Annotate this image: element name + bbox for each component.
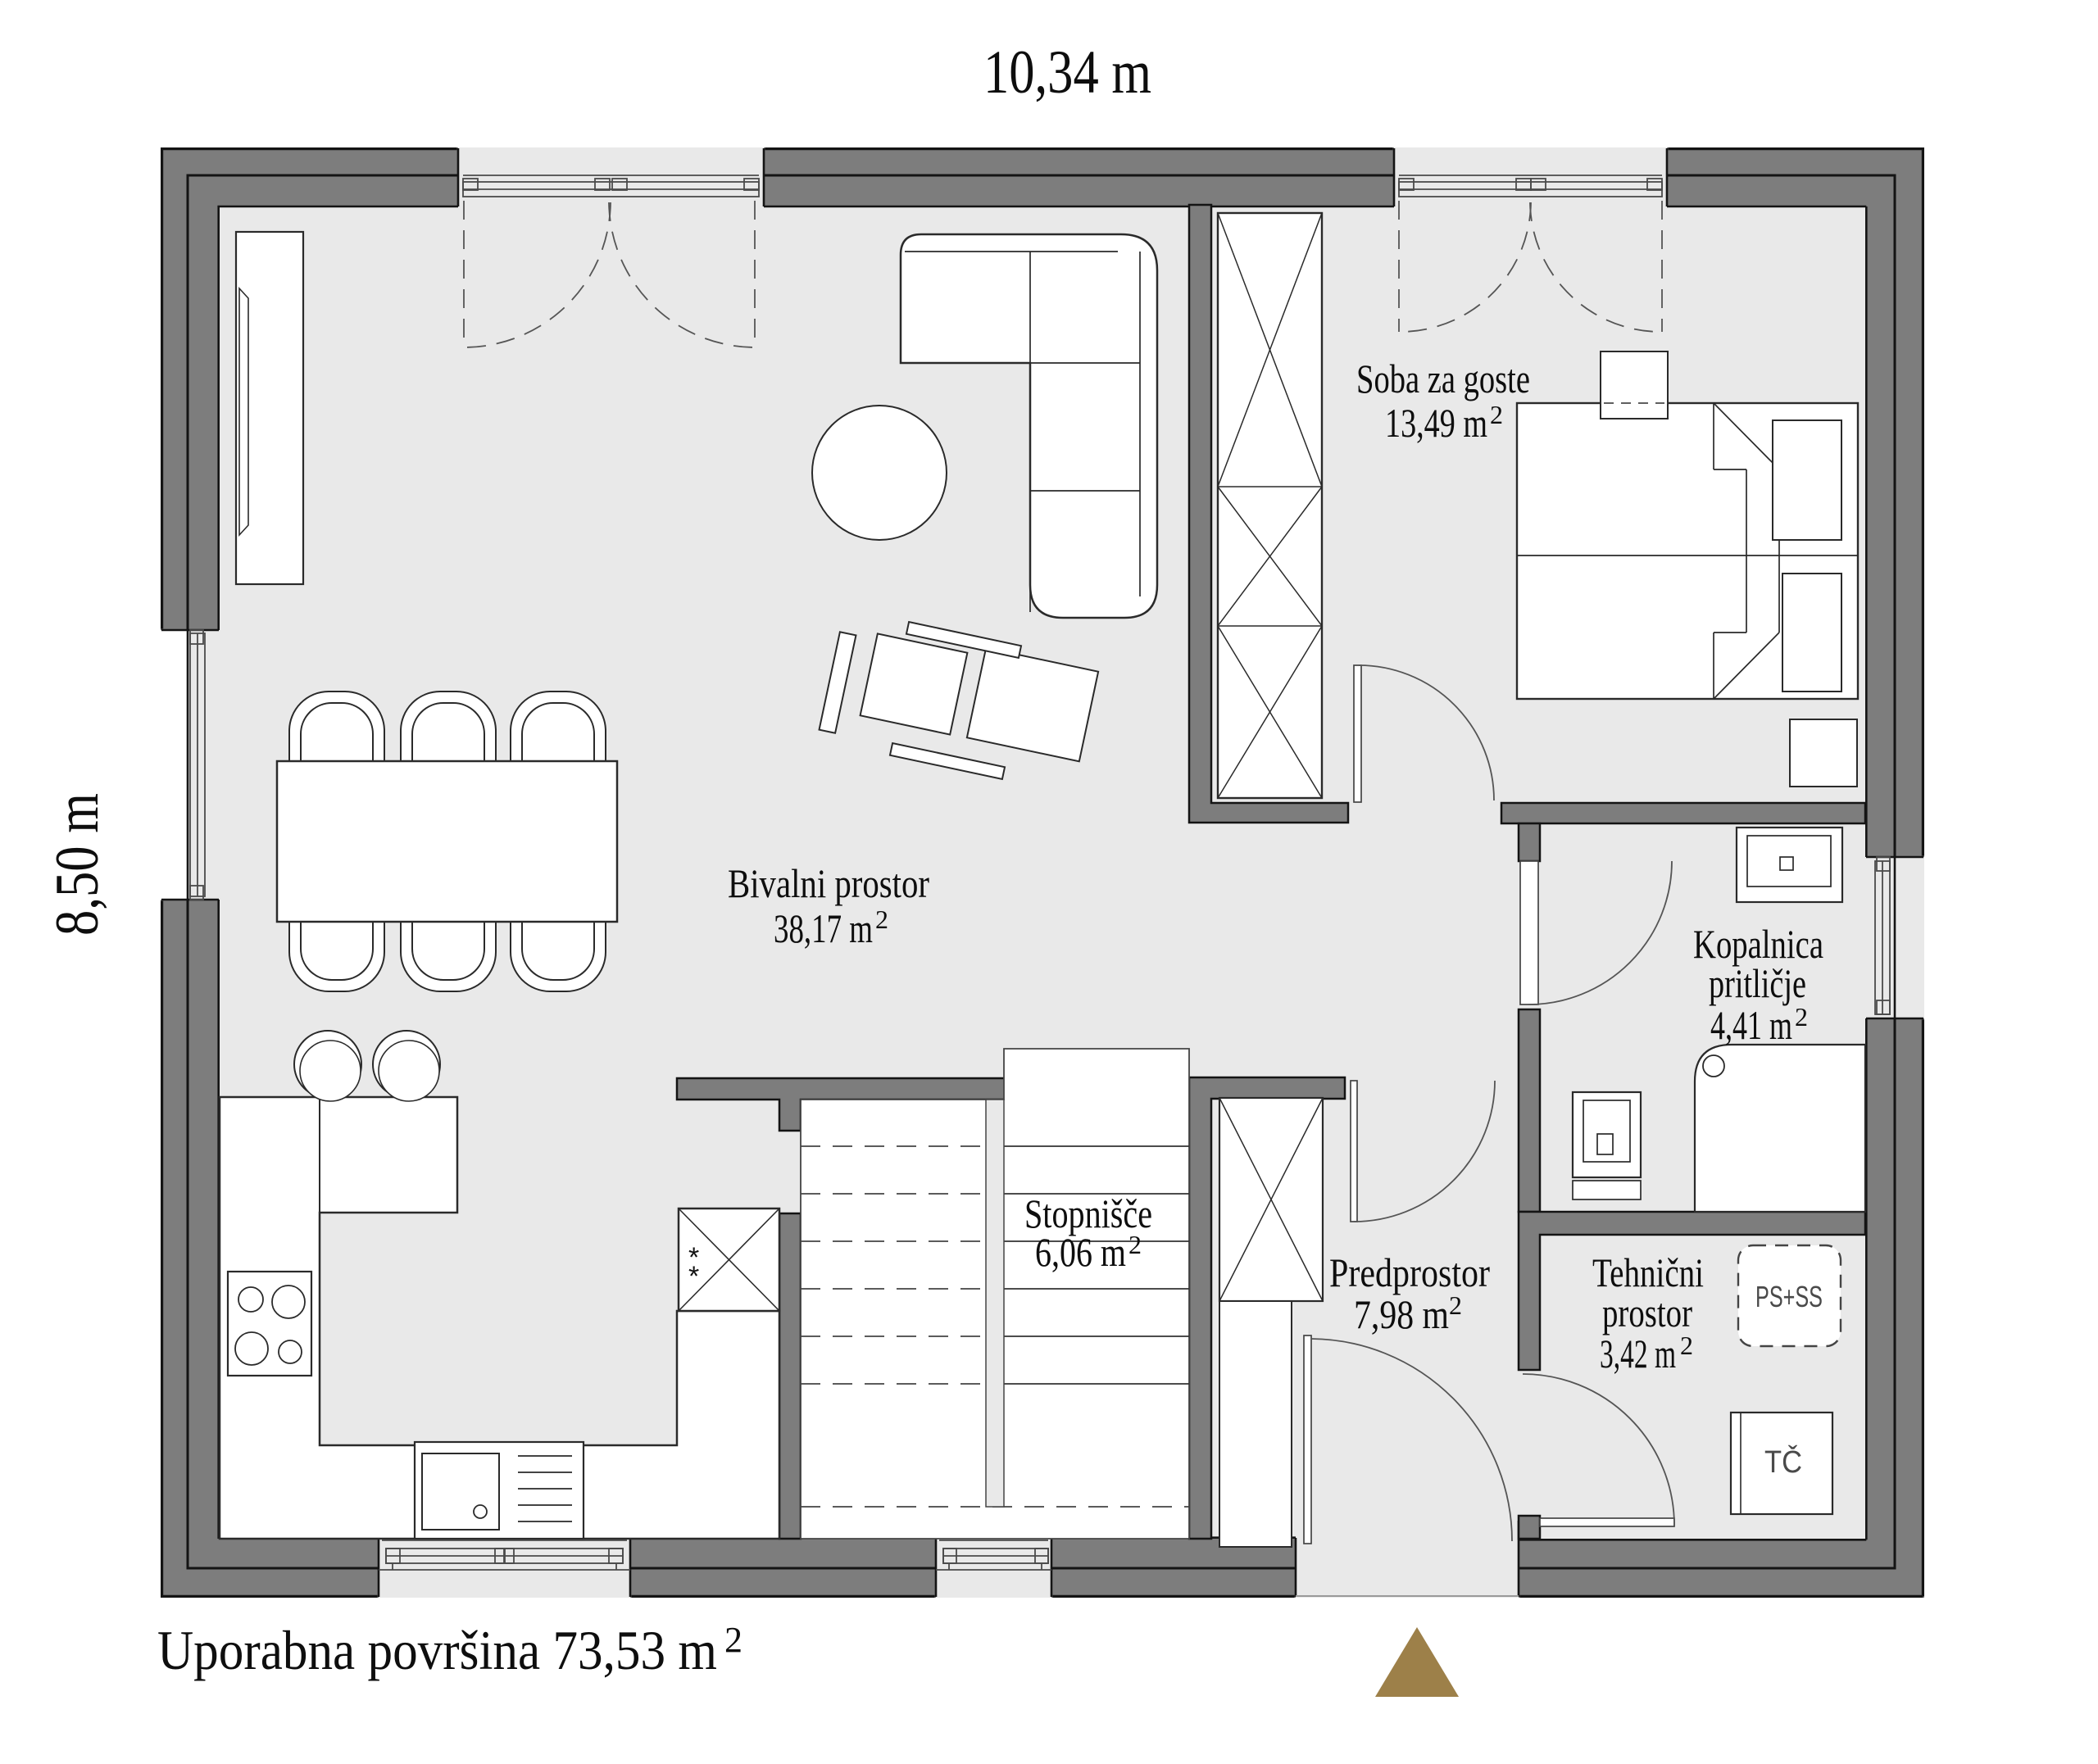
svg-text:2: 2 (1795, 1002, 1808, 1032)
svg-text:13,49 m: 13,49 m (1385, 400, 1487, 446)
svg-text:7,98 m: 7,98 m (1354, 1291, 1449, 1337)
svg-text:Bivalni prostor: Bivalni prostor (728, 860, 929, 906)
svg-text:2: 2 (1680, 1331, 1693, 1360)
svg-text:8,50 m: 8,50 m (43, 793, 111, 936)
svg-text:**: ** (688, 1242, 699, 1292)
svg-text:3,42 m: 3,42 m (1600, 1331, 1676, 1376)
svg-text:2: 2 (1490, 400, 1503, 429)
svg-text:2: 2 (1449, 1290, 1462, 1320)
svg-text:2: 2 (875, 905, 888, 934)
svg-text:prostor: prostor (1602, 1290, 1692, 1335)
svg-text:4,41 m: 4,41 m (1710, 1002, 1792, 1048)
svg-text:2: 2 (724, 1620, 742, 1660)
svg-text:Tehnični: Tehnični (1592, 1249, 1704, 1295)
svg-text:Predprostor: Predprostor (1329, 1249, 1490, 1295)
svg-text:Uporabna površina 73,53 m: Uporabna površina 73,53 m (157, 1619, 717, 1681)
svg-text:PS+SS: PS+SS (1755, 1280, 1823, 1313)
svg-text:pritličje: pritličje (1709, 960, 1806, 1006)
svg-text:2: 2 (1128, 1230, 1142, 1259)
svg-text:38,17 m: 38,17 m (774, 905, 873, 951)
svg-text:10,34 m: 10,34 m (983, 39, 1151, 107)
svg-text:TČ: TČ (1764, 1444, 1802, 1480)
svg-text:Soba za goste: Soba za goste (1356, 356, 1530, 401)
svg-text:6,06 m: 6,06 m (1035, 1229, 1126, 1275)
